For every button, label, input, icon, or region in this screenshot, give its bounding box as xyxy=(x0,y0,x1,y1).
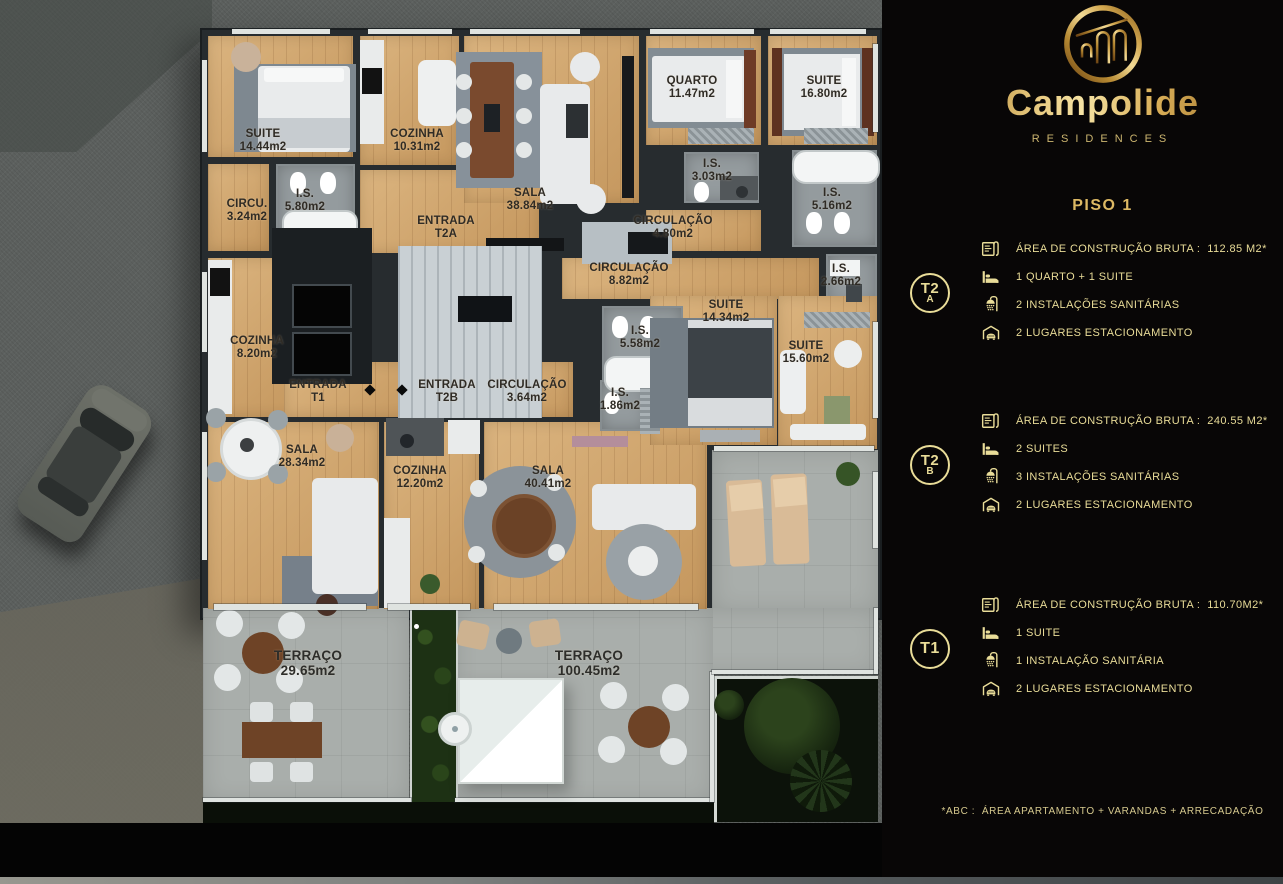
badge-subtext: B xyxy=(926,467,933,477)
room-area: 14.34m2 xyxy=(703,312,750,325)
sink xyxy=(736,186,748,198)
element xyxy=(985,246,992,251)
window-opening xyxy=(455,798,713,802)
room-name: I.S. xyxy=(821,263,861,276)
element xyxy=(991,479,993,481)
element xyxy=(990,309,992,311)
room-area: 3.64m2 xyxy=(487,392,566,405)
chair xyxy=(456,108,472,124)
chair xyxy=(206,462,226,482)
element xyxy=(988,309,990,311)
island-coz10 xyxy=(418,60,456,126)
room-area: 38.84m2 xyxy=(507,200,554,213)
spec-row: 2 LUGARES ESTACIONAMENTO xyxy=(981,323,1193,343)
badge-subtext: A xyxy=(926,295,933,305)
garden-strip xyxy=(203,802,714,823)
element xyxy=(987,661,995,667)
bush xyxy=(714,690,744,720)
element xyxy=(990,481,992,483)
chair xyxy=(600,682,627,709)
room-area: 10.31m2 xyxy=(390,141,444,154)
chair xyxy=(250,762,273,782)
armchair xyxy=(834,340,862,368)
element xyxy=(986,472,994,476)
element xyxy=(996,636,998,639)
element xyxy=(987,661,989,663)
blueprint-icon xyxy=(981,595,1001,615)
room-name: COZINHA xyxy=(390,128,444,141)
spec-text: 2 SUITES xyxy=(1016,443,1068,455)
toilet xyxy=(806,212,822,234)
info-panel: Campolide RESIDENCES PISO 1 T2AÁREA DE C… xyxy=(882,0,1283,884)
room-name: COZINHA xyxy=(393,465,447,478)
room-area: 8.20m2 xyxy=(230,348,284,361)
element xyxy=(987,479,989,481)
element xyxy=(452,726,458,732)
element xyxy=(993,305,995,307)
window-opening xyxy=(202,272,207,352)
chair xyxy=(516,108,532,124)
element xyxy=(991,307,993,309)
element xyxy=(988,665,990,667)
room-area: 12.20m2 xyxy=(393,478,447,491)
chair xyxy=(456,142,472,158)
room-area: 14.44m2 xyxy=(240,141,287,154)
spec-row: 2 INSTALAÇÕES SANITÁRIAS xyxy=(981,295,1179,315)
room-label: COZINHA10.31m2 xyxy=(390,128,444,154)
garage-icon xyxy=(981,679,1001,699)
unit-badge-t2a: T2A xyxy=(910,273,950,313)
counter-coz12 xyxy=(384,518,410,608)
element xyxy=(987,695,989,696)
element xyxy=(992,665,994,667)
garage-icon xyxy=(981,495,1001,515)
window-opening xyxy=(202,432,207,560)
sofa-sala28 xyxy=(312,478,378,594)
chair xyxy=(214,664,241,691)
daybed-suite15 xyxy=(790,424,866,440)
room-area: 8.82m2 xyxy=(589,275,668,288)
element xyxy=(993,339,995,340)
room-label: TERRAÇO29.65m2 xyxy=(274,648,342,678)
room-area: 3.03m2 xyxy=(692,171,732,184)
chair xyxy=(206,408,226,428)
element xyxy=(986,300,994,304)
round-table-gray xyxy=(496,628,522,654)
pavement-dark-patch xyxy=(0,0,212,152)
spec-row: ÁREA DE CONSTRUÇÃO BRUTA : 240.55 M2* xyxy=(981,411,1268,431)
room-area: 16.80m2 xyxy=(801,88,848,101)
spec-text: 1 INSTALAÇÃO SANITÁRIA xyxy=(1016,655,1164,667)
coffee-table xyxy=(566,104,588,138)
window-opening xyxy=(873,322,878,418)
rect-table-terr xyxy=(242,722,322,758)
room-area: 29.65m2 xyxy=(274,663,342,678)
window-opening xyxy=(202,60,207,152)
unit-badge-t1: T1 xyxy=(910,629,950,669)
bed-icon xyxy=(981,623,1001,643)
blueprint-icon xyxy=(981,239,1001,259)
element xyxy=(987,477,989,479)
room-name: SUITE xyxy=(703,299,750,312)
element xyxy=(1067,8,1139,80)
chair xyxy=(268,410,288,430)
element xyxy=(981,323,1001,343)
element xyxy=(991,297,997,312)
element xyxy=(993,477,995,479)
element xyxy=(981,239,1001,259)
room-name: ENTRADA xyxy=(289,379,347,392)
element xyxy=(987,511,989,512)
room-label: QUARTO11.47m2 xyxy=(667,75,718,101)
chair xyxy=(290,762,313,782)
element xyxy=(996,452,998,455)
window-opening xyxy=(232,29,330,34)
room-area: T2B xyxy=(418,392,476,405)
element xyxy=(996,280,998,283)
page-title: PISO 1 xyxy=(882,197,1283,215)
element xyxy=(1114,31,1126,61)
room-label: ENTRADAT2A xyxy=(417,215,475,241)
bottom-curb xyxy=(0,877,1283,884)
element xyxy=(983,627,985,639)
room-name: SALA xyxy=(507,187,554,200)
room-area: 40.41m2 xyxy=(525,478,572,491)
element xyxy=(985,602,992,607)
element xyxy=(987,307,989,309)
floorplan-poster: SUITE14.44m2CIRCU.3.24m2I.S.5.80m2COZINH… xyxy=(0,0,1283,884)
elevator-shaft xyxy=(292,284,352,328)
element xyxy=(987,305,989,307)
shower-icon xyxy=(981,295,1001,315)
room-area: 15.60m2 xyxy=(783,353,830,366)
room-label: SUITE14.34m2 xyxy=(703,299,750,325)
chair xyxy=(468,546,485,563)
room-area: T2A xyxy=(417,228,475,241)
element xyxy=(989,307,991,309)
rug-small xyxy=(824,396,850,426)
room-name: SUITE xyxy=(783,340,830,353)
element xyxy=(993,695,995,696)
armchair xyxy=(570,52,600,82)
room-label: SUITE14.44m2 xyxy=(240,128,287,154)
room-name: COZINHA xyxy=(230,335,284,348)
element xyxy=(987,477,995,483)
window-opening xyxy=(712,670,878,674)
island-white-coz12 xyxy=(448,420,480,454)
room-label: CIRCULAÇÃO4.80m2 xyxy=(633,215,712,241)
room-name: I.S. xyxy=(692,158,732,171)
room-label: ENTRADAT2B xyxy=(418,379,476,405)
element xyxy=(989,479,991,481)
spec-row: 1 SUITE xyxy=(981,623,1060,643)
room-label: I.S.2.66m2 xyxy=(821,263,861,289)
sideboard-pink xyxy=(572,436,628,447)
spec-text: 1 SUITE xyxy=(1016,627,1060,639)
chair xyxy=(516,74,532,90)
footnote: *ABC : ÁREA APARTAMENTO + VARANDAS + ARR… xyxy=(882,806,1283,817)
room-name: I.S. xyxy=(600,387,640,400)
room-name: TERRAÇO xyxy=(274,648,342,663)
spec-text: ÁREA DE CONSTRUÇÃO BRUTA : 110.70M2* xyxy=(1016,599,1263,611)
spec-row: ÁREA DE CONSTRUÇÃO BRUTA : 112.85 M2* xyxy=(981,239,1267,259)
window-opening xyxy=(874,608,878,674)
sink xyxy=(400,434,414,448)
element xyxy=(991,653,997,668)
element xyxy=(986,631,990,634)
brand-logo xyxy=(1061,2,1145,91)
chair-tan xyxy=(528,618,561,648)
armchair xyxy=(576,184,606,214)
window-opening xyxy=(710,672,714,802)
brand-name: Campolide xyxy=(882,82,1283,124)
room-label: SALA28.34m2 xyxy=(279,444,326,470)
room-area: 2.66m2 xyxy=(821,276,861,289)
stair-landing xyxy=(458,296,512,322)
room-name: SALA xyxy=(525,465,572,478)
spec-text: 2 INSTALAÇÕES SANITÁRIAS xyxy=(1016,299,1179,311)
window-opening xyxy=(770,29,866,34)
island-coz12 xyxy=(386,418,444,456)
room-label: I.S.5.16m2 xyxy=(812,187,852,213)
element xyxy=(988,481,990,483)
window-opening xyxy=(388,604,470,610)
chair xyxy=(662,684,689,711)
chair xyxy=(456,74,472,90)
room-label: TERRAÇO100.45m2 xyxy=(555,648,623,678)
element xyxy=(981,467,1001,487)
plant xyxy=(420,574,440,594)
palm-tree xyxy=(790,750,852,812)
room-label: SUITE16.80m2 xyxy=(801,75,848,101)
window-opening xyxy=(203,798,411,802)
chair xyxy=(278,612,305,639)
room-area: 11.47m2 xyxy=(667,88,718,101)
element xyxy=(986,447,990,450)
spec-row: 2 LUGARES ESTACIONAMENTO xyxy=(981,495,1193,515)
room-label: CIRCULAÇÃO8.82m2 xyxy=(589,262,668,288)
room-name: SUITE xyxy=(801,75,848,88)
lounger-flap xyxy=(773,477,807,508)
unit-badge-t2b: T2B xyxy=(910,445,950,485)
room-label: I.S.5.80m2 xyxy=(285,188,325,214)
closet xyxy=(688,128,754,144)
element xyxy=(981,679,1001,699)
window-opening xyxy=(714,446,874,451)
room-name: ENTRADA xyxy=(417,215,475,228)
armchair-suite1 xyxy=(231,42,261,72)
hedge-planter xyxy=(410,608,458,802)
cooktop-coz10 xyxy=(362,68,382,94)
dot xyxy=(414,624,419,629)
element xyxy=(981,439,1001,459)
room-label: COZINHA12.20m2 xyxy=(393,465,447,491)
room-name: ENTRADA xyxy=(418,379,476,392)
element xyxy=(992,309,994,311)
element xyxy=(991,477,993,479)
element xyxy=(986,275,990,278)
element xyxy=(987,305,995,311)
element xyxy=(993,511,995,512)
window-opening xyxy=(873,44,878,132)
lounger-flap xyxy=(729,482,764,511)
room-label: I.S.3.03m2 xyxy=(692,158,732,184)
element xyxy=(990,665,992,667)
shower-icon xyxy=(981,467,1001,487)
element xyxy=(989,477,991,479)
aqueduct-logo-icon xyxy=(1061,2,1145,86)
element xyxy=(991,663,993,665)
elevator-shaft xyxy=(292,332,352,376)
room-name: CIRCULAÇÃO xyxy=(487,379,566,392)
plant xyxy=(836,462,860,486)
element xyxy=(983,443,985,455)
window-opening xyxy=(873,472,878,548)
element xyxy=(986,656,994,660)
spec-row: 1 INSTALAÇÃO SANITÁRIA xyxy=(981,651,1164,671)
pergola xyxy=(458,678,564,784)
window-opening xyxy=(214,604,366,610)
chair xyxy=(548,544,565,561)
room-label: I.S.1.86m2 xyxy=(600,387,640,413)
chair xyxy=(216,610,243,637)
toilet xyxy=(834,212,850,234)
room-label: SUITE15.60m2 xyxy=(783,340,830,366)
element xyxy=(1082,44,1091,57)
round-table-sala40 xyxy=(492,494,556,558)
room-name: CIRCU. xyxy=(227,198,268,211)
chair xyxy=(598,736,625,763)
element xyxy=(991,661,993,663)
room-area: T1 xyxy=(289,392,347,405)
room-area: 5.80m2 xyxy=(285,201,325,214)
room-name: QUARTO xyxy=(667,75,718,88)
room-name: CIRCULAÇÃO xyxy=(589,262,668,275)
element xyxy=(991,469,997,484)
element xyxy=(985,418,992,423)
bed-icon xyxy=(981,267,1001,287)
shower-icon xyxy=(981,651,1001,671)
spec-text: 2 LUGARES ESTACIONAMENTO xyxy=(1016,327,1193,339)
toilet xyxy=(694,182,709,202)
room-area: 3.24m2 xyxy=(227,211,268,224)
spec-row: 2 LUGARES ESTACIONAMENTO xyxy=(981,679,1193,699)
element xyxy=(991,305,993,307)
brand-subtitle: RESIDENCES xyxy=(882,133,1283,145)
room-label: SALA38.84m2 xyxy=(507,187,554,213)
room-name: I.S. xyxy=(285,188,325,201)
room-name: I.S. xyxy=(812,187,852,200)
spec-text: ÁREA DE CONSTRUÇÃO BRUTA : 112.85 M2* xyxy=(1016,243,1267,255)
element xyxy=(981,623,1001,643)
room-area: 4.80m2 xyxy=(633,228,712,241)
element xyxy=(989,661,991,663)
room-label: CIRCU.3.24m2 xyxy=(227,198,268,224)
chair xyxy=(516,142,532,158)
room-label: SALA40.41m2 xyxy=(525,465,572,491)
window-opening xyxy=(494,604,698,610)
room-label: ENTRADAT1 xyxy=(289,379,347,405)
cooktop-coz8 xyxy=(210,268,230,296)
spec-text: 2 LUGARES ESTACIONAMENTO xyxy=(1016,499,1193,511)
room-name: SALA xyxy=(279,444,326,457)
spec-row: 3 INSTALAÇÕES SANITÁRIAS xyxy=(981,467,1179,487)
badge-text: T1 xyxy=(920,641,940,657)
element xyxy=(989,663,991,665)
element xyxy=(981,495,1001,515)
armchair xyxy=(326,424,354,452)
element xyxy=(989,305,991,307)
room-area: 1.86m2 xyxy=(600,400,640,413)
garage-icon xyxy=(981,323,1001,343)
element xyxy=(1097,32,1109,63)
spec-row: 2 SUITES xyxy=(981,439,1068,459)
spec-text: 2 LUGARES ESTACIONAMENTO xyxy=(1016,683,1193,695)
bench xyxy=(700,430,760,442)
element xyxy=(981,651,1001,671)
chair xyxy=(470,480,487,497)
elevator-block xyxy=(272,228,372,384)
window-opening xyxy=(470,29,580,34)
pillow-suite1 xyxy=(264,68,344,82)
spec-row: ÁREA DE CONSTRUÇÃO BRUTA : 110.70M2* xyxy=(981,595,1263,615)
spec-text: 3 INSTALAÇÕES SANITÁRIAS xyxy=(1016,471,1179,483)
bathtub xyxy=(792,150,880,184)
element xyxy=(981,267,1001,287)
window-opening xyxy=(368,29,452,34)
room-label: COZINHA8.20m2 xyxy=(230,335,284,361)
headboard-quarto xyxy=(744,50,756,128)
room-area: 100.45m2 xyxy=(555,663,623,678)
room-name: TERRAÇO xyxy=(555,648,623,663)
chair xyxy=(250,702,273,722)
element xyxy=(981,411,1001,431)
room-name: CIRCULAÇÃO xyxy=(633,215,712,228)
blueprint-icon xyxy=(981,411,1001,431)
element xyxy=(992,481,994,483)
room-label: I.S.5.58m2 xyxy=(620,325,660,351)
element xyxy=(987,663,989,665)
room-name: SUITE xyxy=(240,128,287,141)
pillow-quarto xyxy=(726,60,742,118)
blanket-suite14 xyxy=(688,328,772,398)
room-name: I.S. xyxy=(620,325,660,338)
bed-icon xyxy=(981,439,1001,459)
tv-cabinet xyxy=(622,56,634,198)
closet xyxy=(804,312,870,328)
pavement-light-patch xyxy=(0,578,204,823)
centerpiece xyxy=(240,438,254,452)
armchair xyxy=(628,546,658,576)
element xyxy=(983,271,985,283)
window-opening xyxy=(650,29,754,34)
closet xyxy=(804,128,868,144)
centerpiece xyxy=(484,104,500,132)
element xyxy=(987,339,989,340)
spec-row: 1 QUARTO + 1 SUITE xyxy=(981,267,1133,287)
spec-text: ÁREA DE CONSTRUÇÃO BRUTA : 240.55 M2* xyxy=(1016,415,1268,427)
room-area: 5.16m2 xyxy=(812,200,852,213)
bedpost xyxy=(772,48,782,136)
room-area: 5.58m2 xyxy=(620,338,660,351)
fountain xyxy=(438,712,472,746)
room-area: 28.34m2 xyxy=(279,457,326,470)
element xyxy=(981,295,1001,315)
chair xyxy=(660,738,687,765)
element xyxy=(981,595,1001,615)
chair xyxy=(290,702,313,722)
room-label: CIRCULAÇÃO3.64m2 xyxy=(487,379,566,405)
